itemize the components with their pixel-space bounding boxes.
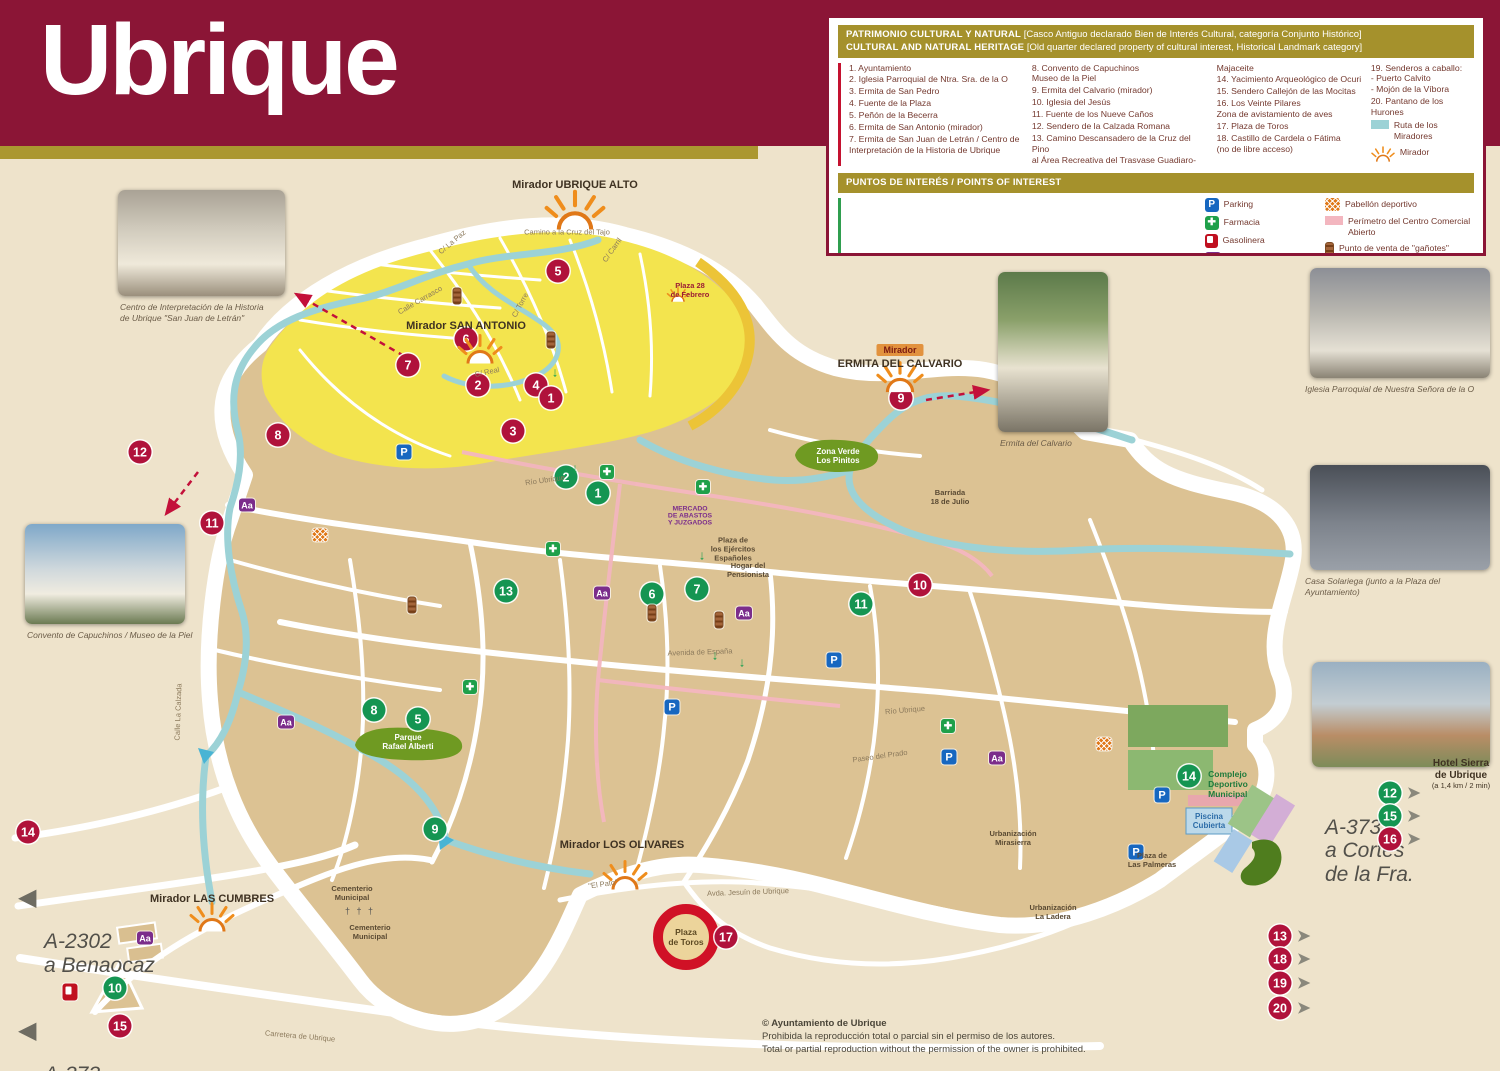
heritage-col-1: 1. Ayuntamiento2. Iglesia Parroquial de … — [849, 63, 1023, 167]
photo-caption: Centro de Interpretación de la Historia … — [120, 302, 295, 325]
legend-item: 18. Castillo de Cardela o Fátima (no de … — [1217, 133, 1362, 155]
ruta-swatch — [1371, 120, 1389, 129]
legend-item: 1. Ayuntamiento — [849, 63, 1023, 74]
heritage-title-es: PATRIMONIO CULTURAL Y NATURAL — [846, 29, 1021, 40]
photo-caption: Convento de Capuchinos / Museo de la Pie… — [27, 630, 207, 641]
heritage-col-4: 19. Senderos a caballo: - Puerto Calvito… — [1371, 63, 1474, 118]
photo-caption: Iglesia Parroquial de Nuestra Señora de … — [1305, 384, 1495, 395]
legend-icon-label: Gasolinera — [1223, 234, 1265, 246]
road-arrow-left-icon: ◀ — [18, 885, 36, 912]
farmacia-icon: ✚ — [1205, 216, 1219, 230]
legend-icon-label: Perímetro del Centro Comercial Abierto — [1348, 215, 1470, 238]
poi-icons-col-1: PParking✚FarmaciaGasolineraAaCEIP/IES — [1205, 198, 1316, 256]
roadsign-bosque: ◀ A-373 a El Bosque — [44, 1016, 157, 1071]
photo-hotel-sierra — [1312, 662, 1490, 767]
ganote-icon — [1325, 242, 1334, 256]
legend-item: 2. Iglesia Parroquial de Ntra. Sra. de l… — [849, 74, 1023, 85]
legend-icon-row: ✚Farmacia — [1205, 216, 1316, 230]
legend-icon-row: Punto de venta de "gañotes" — [1325, 242, 1474, 256]
roadsign-cortes: A-373 a Cortes de la Fra. — [1325, 792, 1414, 886]
heritage-extras: Ruta de los Miradores Mirador — [1371, 119, 1474, 162]
heritage-legend-lists: 1. Ayuntamiento2. Iglesia Parroquial de … — [838, 63, 1474, 167]
legend-icon-label: Ruta de los Miradores — [1394, 119, 1474, 142]
poi-legend-lists: PParking✚FarmaciaGasolineraAaCEIP/IES Pa… — [838, 198, 1474, 256]
legend-item: 7. Ermita de San Juan de Letrán / Centro… — [849, 134, 1023, 156]
heritage-note-es: [Casco Antiguo declarado Bien de Interés… — [1024, 29, 1362, 40]
pabellon-icon — [1325, 198, 1340, 211]
parking-icon: P — [1205, 198, 1219, 212]
heritage-col-2: 8. Convento de Capuchinos Museo de la Pi… — [1032, 63, 1208, 167]
legend-icon-row: Ruta de los Miradores — [1371, 119, 1474, 142]
legend-item: 6. Ermita de San Antonio (mirador) — [849, 122, 1023, 133]
copyright-line: © Ayuntamiento de Ubrique — [762, 1018, 1086, 1031]
photo-iglesia-parroquial — [1310, 268, 1490, 378]
ubrique-tourist-map-poster: Ubrique — [0, 0, 1500, 1071]
photo-casa-solariega — [1310, 465, 1490, 570]
photo-convento-capuchinos — [25, 524, 185, 624]
legend-icon-label: Parking — [1224, 198, 1253, 210]
legend-icon-row: Pabellón deportivo — [1325, 198, 1474, 211]
legend-icon-label: Farmacia — [1224, 216, 1260, 228]
legend-item: 14. Yacimiento Arqueológico de Ocuri — [1217, 74, 1362, 85]
legend-icon-row: Perímetro del Centro Comercial Abierto — [1325, 215, 1474, 238]
legend-icon-label: Pabellón deportivo — [1345, 198, 1417, 210]
legend-icon-row: Gasolinera — [1205, 234, 1316, 248]
poi-icons-col-2: Pabellón deportivoPerímetro del Centro C… — [1325, 198, 1474, 256]
gasolinera-icon — [1205, 234, 1218, 248]
legend-item: 10. Iglesia del Jesús — [1032, 97, 1208, 108]
photo-caption: Ermita del Calvario — [1000, 438, 1120, 449]
legend-item: 9. Ermita del Calvario (mirador) — [1032, 85, 1208, 96]
legend-icon-label: Mirador — [1400, 146, 1429, 158]
mirador-sun-icon — [1371, 146, 1395, 163]
legend-icon-row: PParking — [1205, 198, 1316, 212]
copyright-line: Total or partial reproduction without th… — [762, 1044, 1086, 1057]
heritage-title-en: CULTURAL AND NATURAL HERITAGE — [846, 42, 1024, 53]
poi-title: PUNTOS DE INTERÉS / POINTS OF INTEREST — [846, 177, 1061, 188]
plaza-de-toros-ring — [658, 909, 714, 965]
copyright-line: Prohibida la reproducción total o parcia… — [762, 1031, 1086, 1044]
legend-item: 20. Pantano de los Hurones — [1371, 96, 1474, 118]
perimetro-swatch — [1325, 216, 1343, 225]
legend-item: 3. Ermita de San Pedro — [849, 86, 1023, 97]
photo-centro-interpretacion — [118, 190, 285, 296]
mirador-sun-icon — [1371, 146, 1395, 163]
legend-icon-row: Mirador — [1371, 146, 1474, 163]
legend-item: 16. Los Veinte Pilares Zona de avistamie… — [1217, 98, 1362, 120]
road-arrow-left-icon: ◀ — [18, 1018, 36, 1045]
heritage-col-3: Majaceite14. Yacimiento Arqueológico de … — [1217, 63, 1362, 167]
legend-item: 15. Sendero Callejón de las Mocitas — [1217, 86, 1362, 97]
ceip-icon: Aa — [1205, 252, 1221, 256]
roadsign-benaocaz: ◀ A-2302 a Benaocaz — [44, 883, 155, 977]
legend-item: 13. Camino Descansadero de la Cruz del P… — [1032, 133, 1208, 166]
legend-icon-label: Punto de venta de "gañotes" — [1339, 242, 1449, 254]
heritage-note-en: [Old quarter declared property of cultur… — [1027, 42, 1362, 53]
poi-col-1 — [849, 198, 1019, 256]
legend-item: 12. Sendero de la Calzada Romana — [1032, 121, 1208, 132]
legend-item: 8. Convento de Capuchinos Museo de la Pi… — [1032, 63, 1208, 85]
legend-icon-label: CEIP/IES — [1226, 252, 1263, 256]
photo-caption: Casa Solariega (junto a la Plaza del Ayu… — [1305, 576, 1495, 599]
copyright-block: © Ayuntamiento de Ubrique Prohibida la r… — [762, 1018, 1086, 1056]
legend-item: 17. Plaza de Toros — [1217, 121, 1362, 132]
heritage-legend-header: PATRIMONIO CULTURAL Y NATURAL [Casco Ant… — [838, 25, 1474, 58]
legend-item: 11. Fuente de los Nueve Caños — [1032, 109, 1208, 120]
legend-icon-row: AaCEIP/IES — [1205, 252, 1316, 256]
legend-item: 5. Peñón de la Becerra — [849, 110, 1023, 121]
legend-panel: PATRIMONIO CULTURAL Y NATURAL [Casco Ant… — [826, 15, 1486, 256]
legend-item: 19. Senderos a caballo: - Puerto Calvito… — [1371, 63, 1474, 96]
legend-item: 4. Fuente de la Plaza — [849, 98, 1023, 109]
poi-legend-header: PUNTOS DE INTERÉS / POINTS OF INTEREST — [838, 173, 1474, 192]
hotel-distance-label: Hotel Sierra de Ubrique (a 1,4 km / 2 mi… — [1424, 758, 1498, 790]
photo-ermita-calvario — [998, 272, 1108, 432]
legend-item: Majaceite — [1217, 63, 1362, 74]
poi-col-2 — [1028, 198, 1196, 256]
